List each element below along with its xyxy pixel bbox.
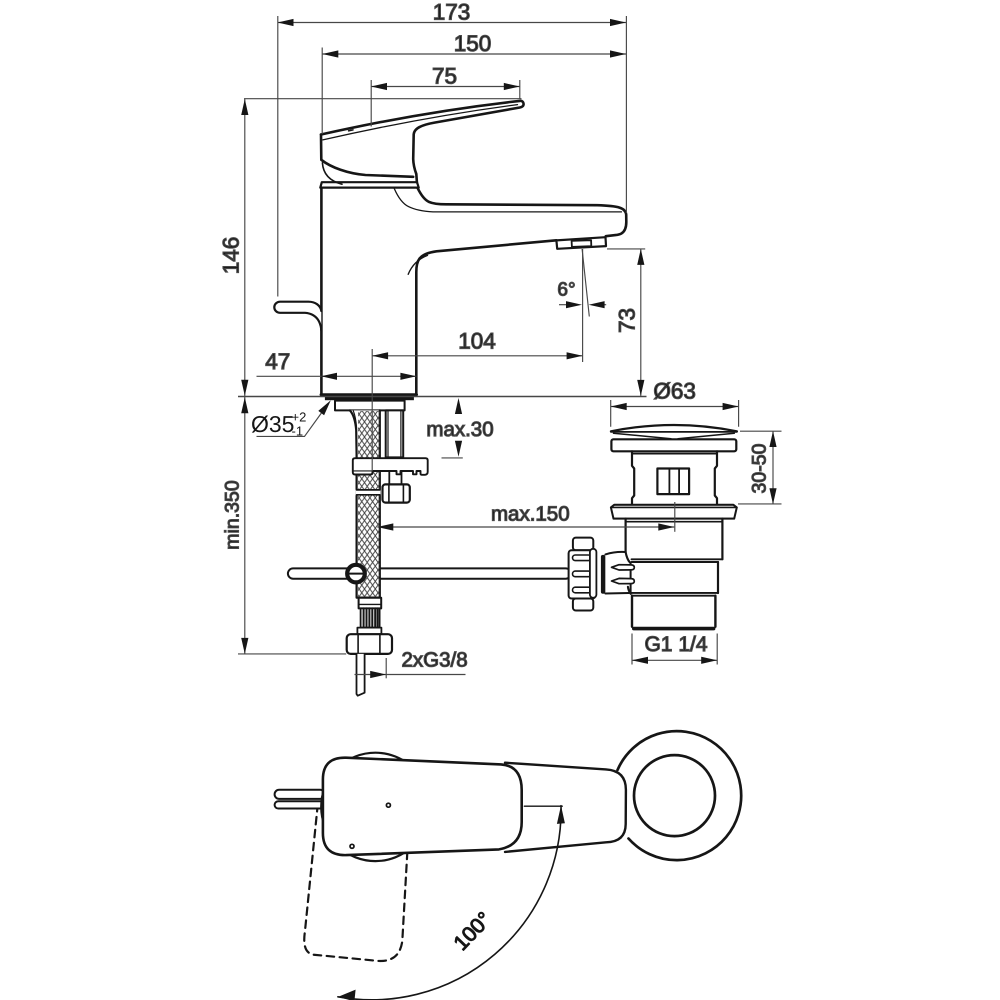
svg-text:Ø63: Ø63: [653, 378, 696, 403]
svg-text:75: 75: [432, 64, 457, 89]
svg-text:6°: 6°: [557, 280, 575, 301]
svg-text:2xG3/8: 2xG3/8: [402, 649, 468, 672]
svg-text:104: 104: [458, 329, 496, 354]
svg-text:173: 173: [433, 0, 471, 25]
svg-text:max.150: max.150: [491, 502, 570, 525]
svg-text:G1 1/4: G1 1/4: [644, 633, 707, 656]
svg-text:max.30: max.30: [426, 418, 493, 441]
svg-text:Ø35: Ø35: [251, 411, 294, 437]
svg-text:+2: +2: [292, 410, 307, 425]
svg-text:73: 73: [615, 308, 640, 333]
svg-text:min.350: min.350: [222, 480, 244, 550]
svg-text:150: 150: [454, 31, 492, 56]
svg-text:146: 146: [219, 237, 244, 275]
svg-text:47: 47: [265, 349, 290, 374]
svg-text:30-50: 30-50: [749, 443, 771, 493]
